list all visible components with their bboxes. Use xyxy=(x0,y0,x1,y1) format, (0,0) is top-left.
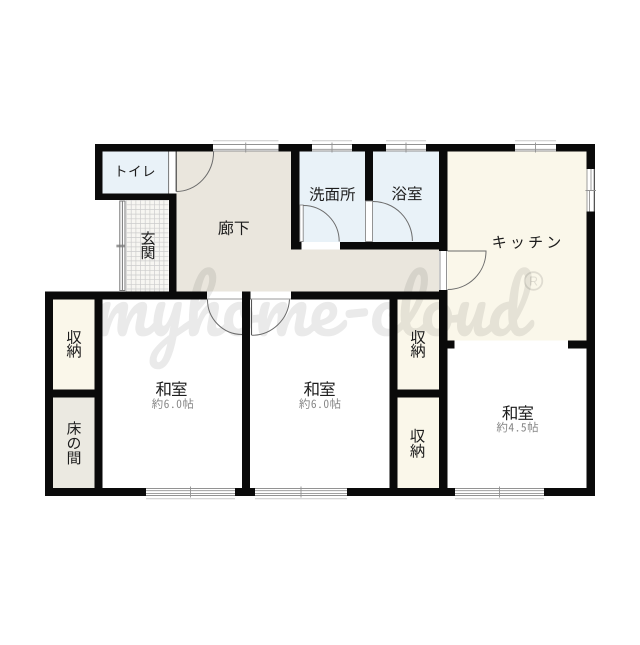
svg-text:R: R xyxy=(529,275,538,289)
